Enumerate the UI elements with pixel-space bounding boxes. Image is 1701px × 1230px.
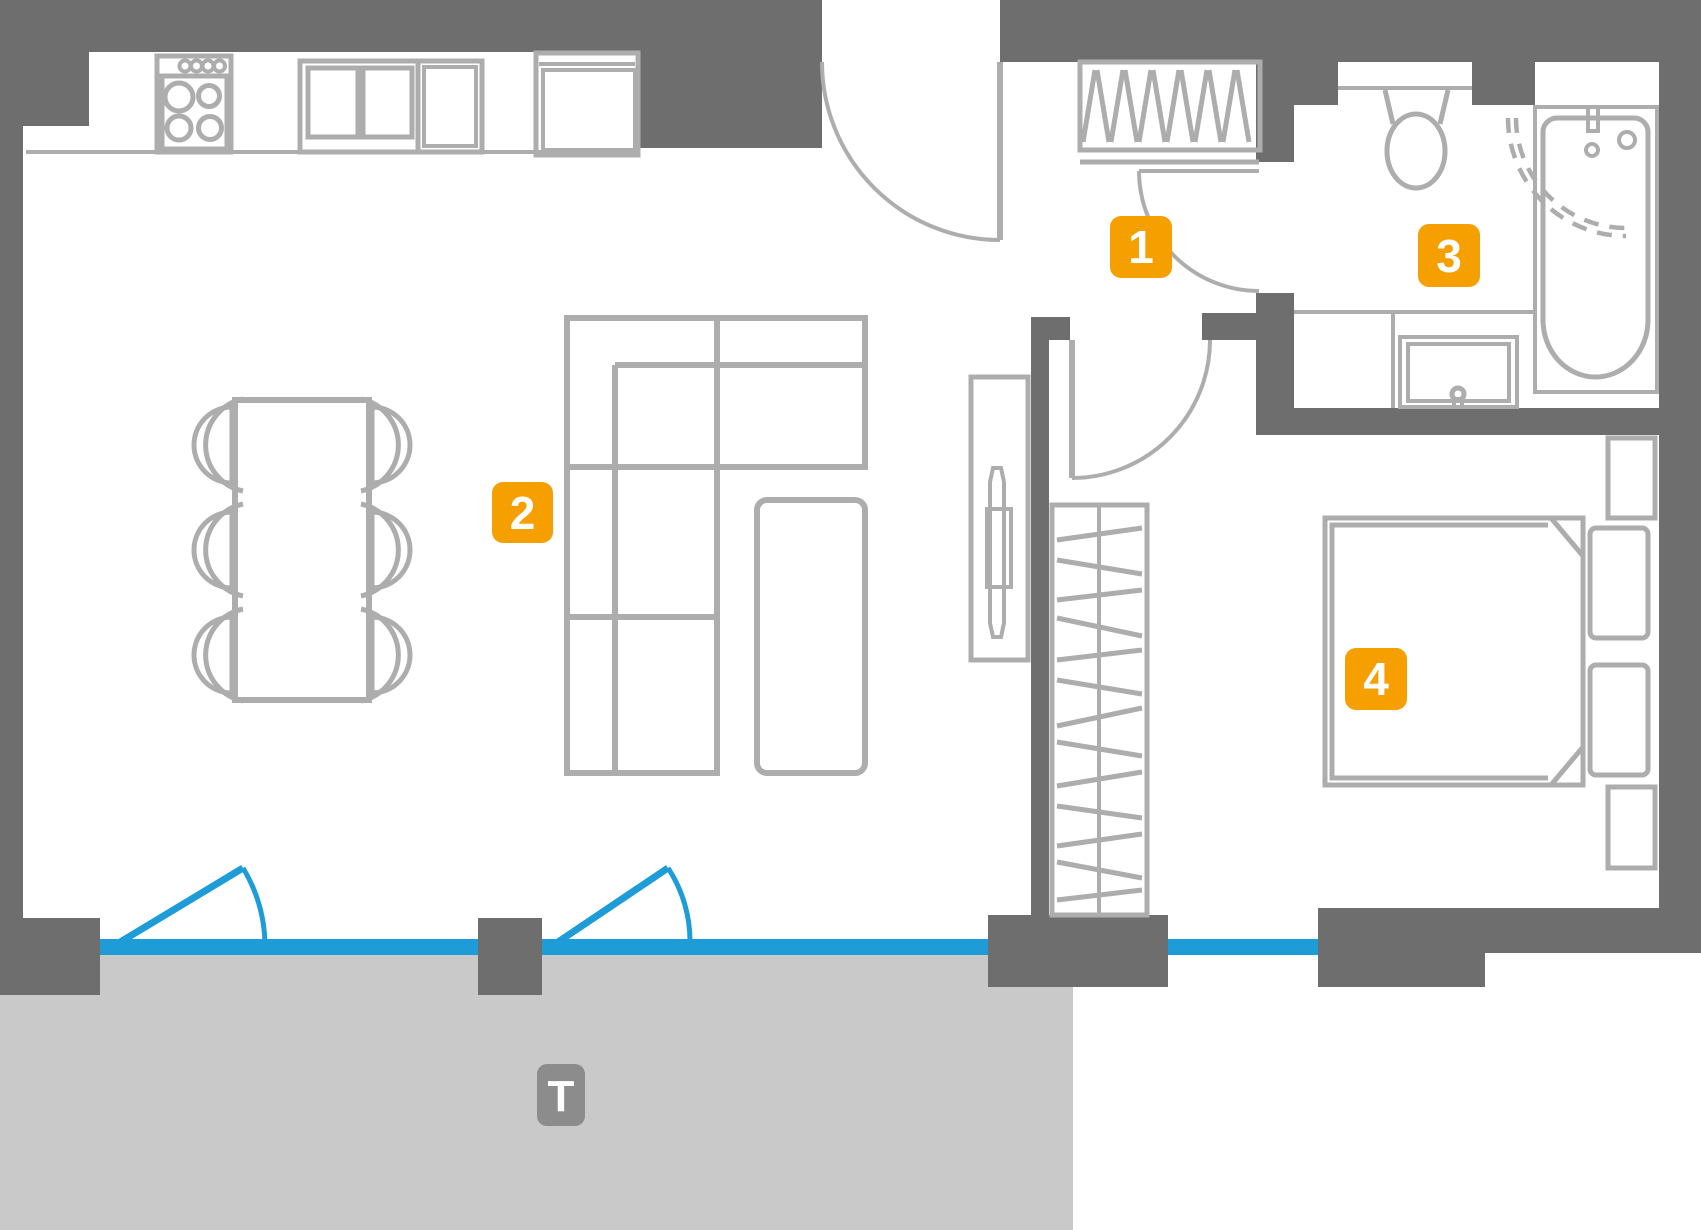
marker-3-label: 3 [1436,230,1462,282]
terrace-door-swings [112,868,690,947]
terrace-door-swing-arc [668,868,690,942]
bathtub [1508,107,1657,392]
wall-segment [0,0,89,126]
nightstand [1608,787,1655,868]
terrace-area [0,955,1073,1230]
tv-panel [990,468,1004,637]
terrace-door-swing-arc [243,868,265,947]
toilet [1338,88,1472,188]
stove-knob [203,61,214,72]
hatch-line [1111,70,1123,142]
wall-segment [1202,313,1262,340]
stove [157,56,231,152]
hatch-line [1209,70,1221,142]
dining-set [194,399,410,701]
cabinet-inner [543,70,635,150]
wall-segment [1472,62,1535,105]
toilet-side [1385,90,1393,124]
stove-knob [214,61,225,72]
burner [199,86,220,107]
marker-living-room: 2 [492,482,553,543]
wardrobe [1052,505,1147,915]
sink-bowl [308,68,358,137]
marker-hall: 1 [1110,216,1172,278]
bathtub-mixer [1619,132,1635,148]
toilet-side [1440,90,1448,124]
entry-door-swing-arc [822,62,1000,240]
wall-segment [1031,317,1049,915]
kitchen-unit-outline [418,61,482,152]
terrace-door-leaf [112,868,243,947]
coat-rack-hatch [1083,70,1249,142]
hatch-line [1195,70,1207,142]
shower-screen-arc [1508,118,1626,236]
toilet-bowl [1387,114,1445,188]
hatch-line [1083,70,1095,142]
ottoman [757,500,865,773]
wall-pier [478,918,542,995]
hatch-line [1167,70,1179,142]
tv-board [971,377,1028,660]
shower-screen-arc [1516,118,1626,228]
marker-4-label: 4 [1363,653,1389,705]
sink-bowl [363,68,412,137]
nightstand [1608,438,1655,518]
marker-1-label: 1 [1128,221,1154,273]
marker-t-label: T [548,1072,575,1121]
hatch-line [1097,70,1109,142]
hall-door-swing-arc [1072,340,1210,478]
dining-table [235,400,369,700]
hatch-line [1139,70,1151,142]
marker-2-label: 2 [510,487,536,539]
marker-bedroom: 4 [1345,648,1407,710]
burner [199,117,222,140]
bed-fold-line [1551,518,1583,556]
hatch-line [1153,70,1165,142]
wall-pier [988,915,1168,987]
tv-unit [971,377,1028,660]
wall-segment [1000,0,1701,62]
washbasin [1400,337,1517,407]
washbasin-inner [1408,344,1509,401]
coat-rack [1080,62,1260,162]
marker-bathroom: 3 [1418,224,1480,287]
terrace-door-leaf [558,868,668,942]
wall-segment [640,0,822,148]
wall-segment [1256,293,1294,408]
hatch-line [1223,70,1235,142]
hatch-line [1237,70,1249,142]
wall-segment [0,126,23,918]
pillow [1590,665,1648,775]
marker-terrace: T [537,1064,585,1126]
wall-segment [1485,908,1701,953]
burner [167,116,191,140]
wall-pier [1318,908,1485,987]
hatch-line [1125,70,1137,142]
bathtub-drain [1586,144,1598,156]
kitchen-unit [418,61,482,152]
kitchen-cabinet [536,53,638,155]
hatch-line [1181,70,1193,142]
wall-segment [0,918,100,995]
washbasin-outline [1400,337,1517,407]
bed-fold-line [1551,747,1583,785]
floor-plan: 1 2 3 4 T [0,0,1701,1230]
kitchen-unit-inner [424,67,476,146]
stove-knob [180,61,191,72]
wall-segment [89,0,640,52]
kitchen-sink [300,61,418,152]
sofa [567,318,865,773]
pillow [1590,528,1648,638]
floor-plan-svg: 1 2 3 4 T [0,0,1701,1230]
kitchen [26,53,638,155]
stove-knob [191,61,202,72]
burner [165,83,193,111]
wall-segment [1256,408,1660,435]
wall-segment [1659,62,1701,953]
